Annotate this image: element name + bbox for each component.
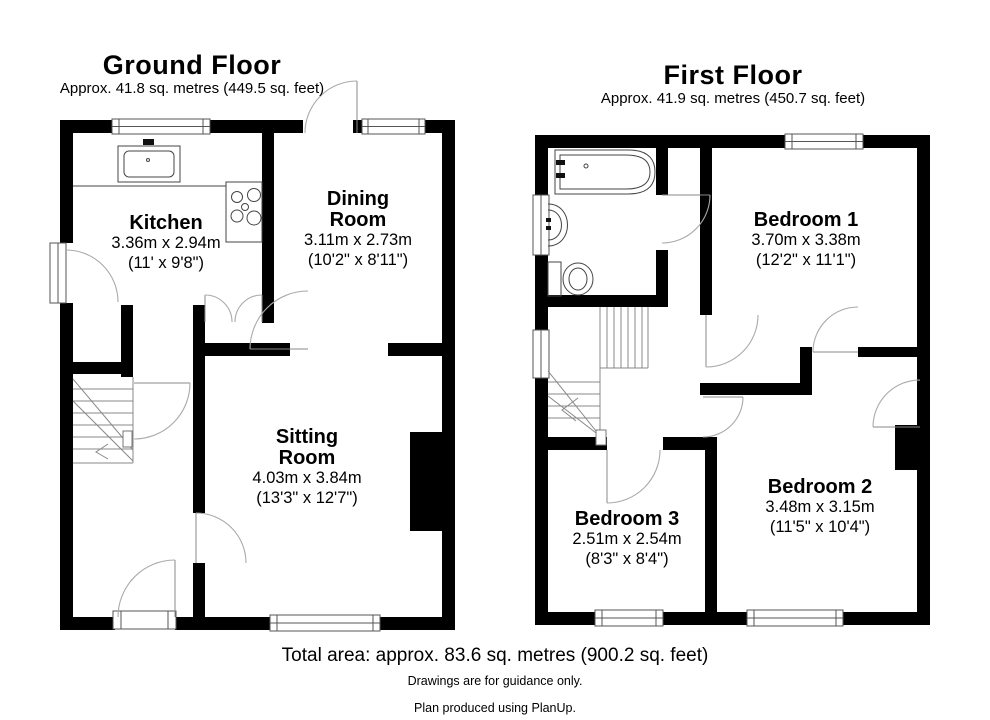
window	[50, 243, 66, 303]
bathroom-fixtures	[546, 150, 655, 296]
floorplan-page: Ground Floor Approx. 41.8 sq. metres (44…	[0, 0, 990, 720]
room-dim-imperial: (11' x 9'8")	[111, 254, 220, 274]
credit-text: Plan produced using PlanUp.	[414, 701, 576, 715]
door-arc	[706, 315, 758, 367]
room-dim-metric: 3.48m x 3.15m	[765, 498, 874, 518]
door-arc	[813, 307, 858, 352]
ground-floor-plan	[50, 81, 455, 631]
chimney-breast	[410, 432, 442, 531]
room-name: Dining Room	[310, 189, 406, 231]
room-name: Bedroom 1	[751, 210, 860, 231]
front-door-threshold	[113, 611, 176, 629]
sitting-room-label: Sitting Room 4.03m x 3.84m (13'3" x 12'7…	[252, 427, 361, 509]
window	[112, 119, 210, 134]
window	[533, 195, 549, 255]
kitchen-label: Kitchen 3.36m x 2.94m (11' x 9'8")	[111, 213, 220, 274]
kitchen-sink	[118, 139, 180, 182]
door-arc	[196, 513, 246, 563]
room-dim-metric: 3.70m x 3.38m	[751, 231, 860, 251]
ground-floor-title: Ground Floor	[103, 50, 281, 81]
first-stairs	[548, 307, 648, 445]
room-dim-imperial: (11'5" x 10'4")	[765, 518, 874, 538]
total-area-text: Total area: approx. 83.6 sq. metres (900…	[282, 645, 709, 667]
room-name: Sitting Room	[259, 427, 355, 469]
door-arc	[873, 380, 920, 427]
room-name: Bedroom 3	[572, 509, 681, 530]
window	[595, 610, 663, 626]
window	[747, 610, 843, 626]
door-arc	[66, 250, 118, 302]
room-dim-metric: 2.51m x 2.54m	[572, 530, 681, 550]
bedroom-2-label: Bedroom 2 3.48m x 3.15m (11'5" x 10'4")	[765, 477, 874, 538]
room-dim-imperial: (13'3" x 12'7")	[252, 489, 361, 509]
room-name: Kitchen	[111, 213, 220, 234]
toilet	[548, 262, 593, 296]
room-dim-metric: 3.11m x 2.73m	[304, 231, 412, 251]
door-arc	[703, 397, 743, 437]
door-arc	[134, 383, 190, 439]
room-dim-metric: 3.36m x 2.94m	[111, 234, 220, 254]
room-dim-imperial: (8'3" x 8'4")	[572, 550, 681, 570]
first-floor-area: Approx. 41.9 sq. metres (450.7 sq. feet)	[601, 90, 865, 107]
first-floor-title: First Floor	[664, 60, 803, 91]
floorplan-drawing	[0, 0, 990, 720]
door-arc	[250, 291, 308, 349]
bathtub	[555, 150, 655, 194]
chimney-breast	[895, 425, 917, 470]
window	[362, 119, 425, 134]
disclaimer-text: Drawings are for guidance only.	[408, 674, 583, 688]
window	[533, 330, 549, 378]
bedroom-3-label: Bedroom 3 2.51m x 2.54m (8'3" x 8'4")	[572, 509, 681, 570]
bedroom-1-label: Bedroom 1 3.70m x 3.38m (12'2" x 11'1")	[751, 210, 860, 271]
double-door-arcs	[205, 295, 262, 322]
room-name: Bedroom 2	[765, 477, 874, 498]
dining-room-label: Dining Room 3.11m x 2.73m (10'2" x 8'11"…	[304, 189, 412, 271]
room-dim-imperial: (10'2" x 8'11")	[304, 251, 412, 271]
door-arc	[118, 560, 175, 617]
ground-floor-area: Approx. 41.8 sq. metres (449.5 sq. feet)	[60, 80, 324, 97]
ground-stairs	[73, 377, 133, 463]
window	[785, 134, 863, 149]
hob	[226, 182, 262, 242]
room-dim-imperial: (12'2" x 11'1")	[751, 251, 860, 271]
door-arc	[607, 450, 660, 503]
window	[270, 615, 380, 631]
room-dim-metric: 4.03m x 3.84m	[252, 469, 361, 489]
